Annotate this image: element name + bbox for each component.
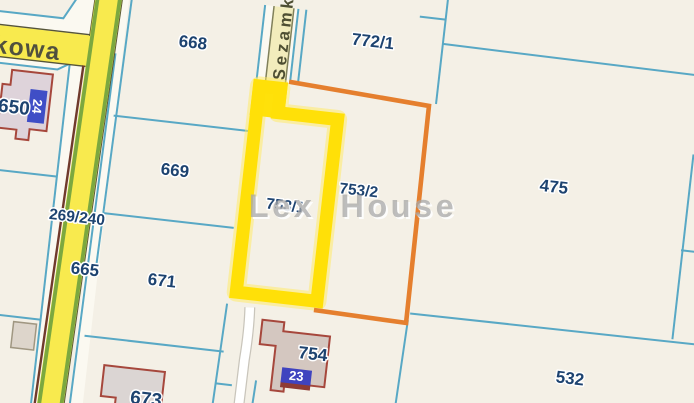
svg-text:665: 665 (70, 258, 100, 280)
svg-text:668: 668 (178, 32, 208, 54)
svg-text:24: 24 (29, 98, 46, 115)
svg-text:673: 673 (129, 387, 163, 403)
svg-text:23: 23 (288, 368, 304, 385)
svg-text:Lex House: Lex House (249, 188, 457, 224)
svg-text:475: 475 (539, 176, 569, 198)
svg-text:754: 754 (297, 342, 329, 365)
svg-text:669: 669 (160, 159, 190, 181)
svg-text:671: 671 (147, 270, 177, 292)
svg-text:532: 532 (555, 367, 585, 389)
svg-text:650: 650 (0, 96, 31, 120)
